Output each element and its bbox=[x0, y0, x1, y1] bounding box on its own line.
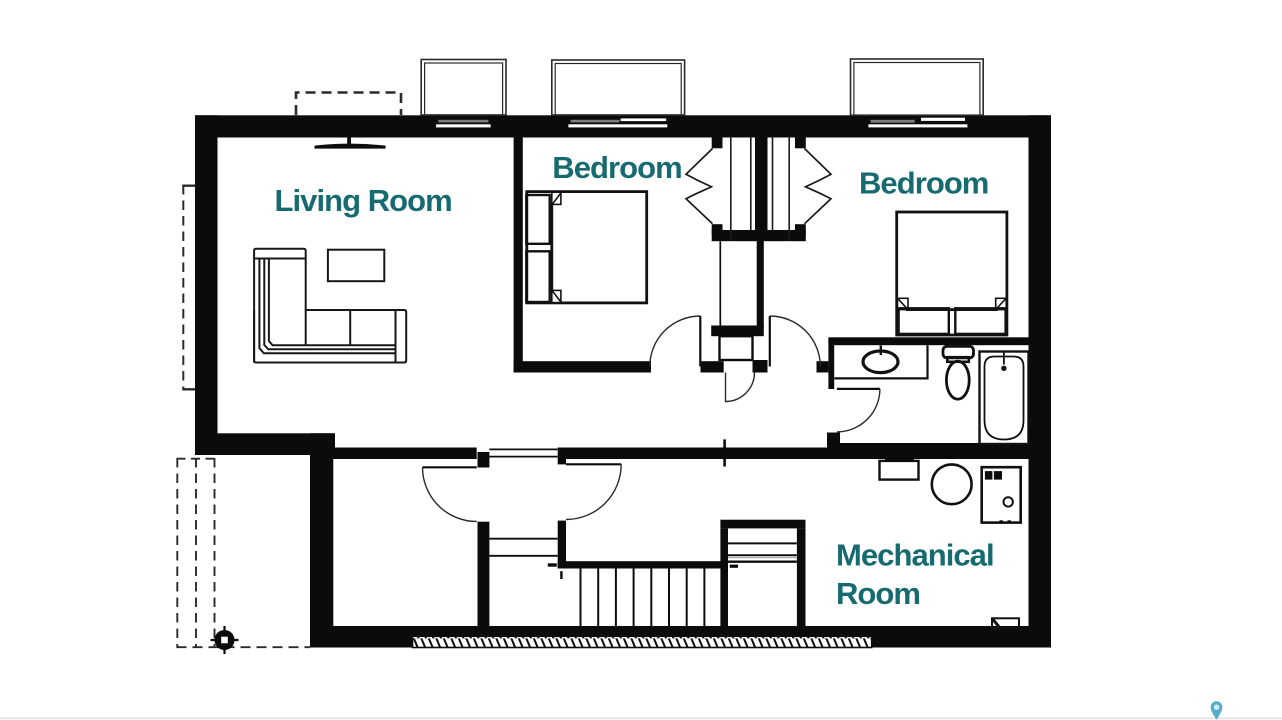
svg-text:Room: Room bbox=[836, 576, 920, 611]
svg-text:Living Room: Living Room bbox=[275, 183, 452, 218]
svg-text:Bedroom: Bedroom bbox=[552, 150, 681, 185]
svg-text:Mechanical: Mechanical bbox=[836, 537, 994, 572]
svg-text:Bedroom: Bedroom bbox=[859, 166, 988, 201]
